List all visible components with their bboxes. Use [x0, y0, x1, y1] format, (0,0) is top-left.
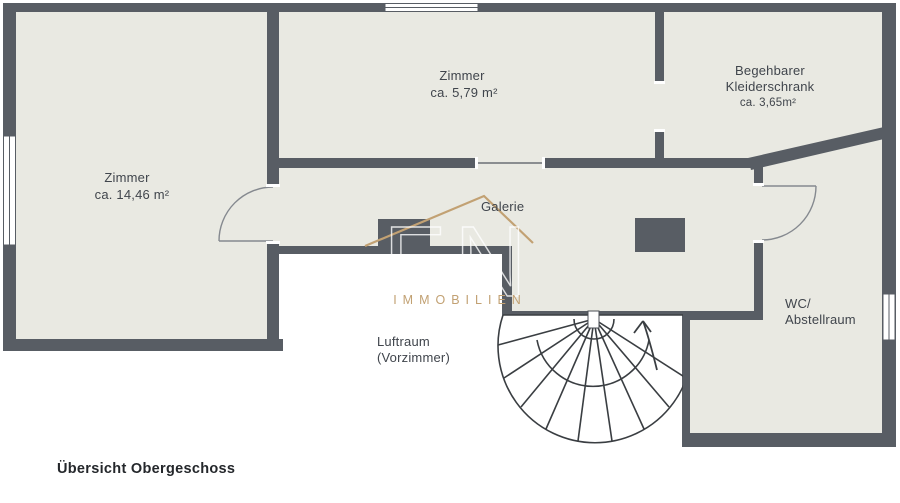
- wall-wc-bottom: [682, 433, 896, 447]
- label-wc-1: WC/: [785, 296, 811, 311]
- pillar-right: [635, 218, 685, 252]
- floorplan-canvas: FN IMMOBILIEN Zimmer ca. 5,79 m² Begehba…: [0, 0, 900, 503]
- label-kleiderschrank-2: Kleiderschrank: [726, 79, 815, 94]
- stair-treads: [498, 319, 686, 441]
- stairs-up-arrow-icon: [634, 321, 657, 370]
- wall-stub-upper: [754, 158, 763, 183]
- wall-stub-lower: [754, 243, 763, 320]
- label-galerie: Galerie: [481, 199, 524, 214]
- window-right: [883, 294, 895, 340]
- wall-wc-left: [682, 311, 690, 447]
- stair-newel: [588, 311, 599, 328]
- label-luftraum-1: Luftraum: [377, 334, 430, 349]
- wall-mid-horizontal-left: [267, 158, 478, 168]
- label-zimmer-left: Zimmer: [104, 170, 150, 185]
- label-kleiderschrank-1: Begehbarer: [735, 63, 805, 78]
- label-zimmer-left-area: ca. 14,46 m²: [95, 187, 170, 202]
- window-top: [385, 4, 478, 12]
- wall-room1-right-lower: [267, 241, 279, 351]
- window-left: [4, 136, 16, 245]
- wall-kleiderschrank-lower: [655, 132, 664, 168]
- floorplan-svg: FN IMMOBILIEN Zimmer ca. 5,79 m² Begehba…: [0, 0, 900, 503]
- label-zimmer-top: Zimmer: [439, 68, 485, 83]
- label-wc-2: Abstellraum: [785, 312, 856, 327]
- spiral-staircase: [498, 311, 692, 443]
- label-luftraum-2: (Vorzimmer): [377, 350, 450, 365]
- watermark-wordmark: IMMOBILIEN: [393, 293, 527, 307]
- label-kleiderschrank-area: ca. 3,65m²: [740, 97, 796, 109]
- wall-bottom-left: [3, 339, 283, 351]
- watermark-logo: FN IMMOBILIEN: [365, 196, 537, 318]
- wall-mid-horizontal-right: [545, 158, 757, 168]
- wall-galerie-wc: [683, 311, 763, 320]
- wall-right: [882, 3, 896, 447]
- page-title: Übersicht Obergeschoss: [57, 460, 235, 477]
- wall-kleiderschrank-upper: [655, 12, 664, 81]
- label-zimmer-top-area: ca. 5,79 m²: [430, 85, 498, 100]
